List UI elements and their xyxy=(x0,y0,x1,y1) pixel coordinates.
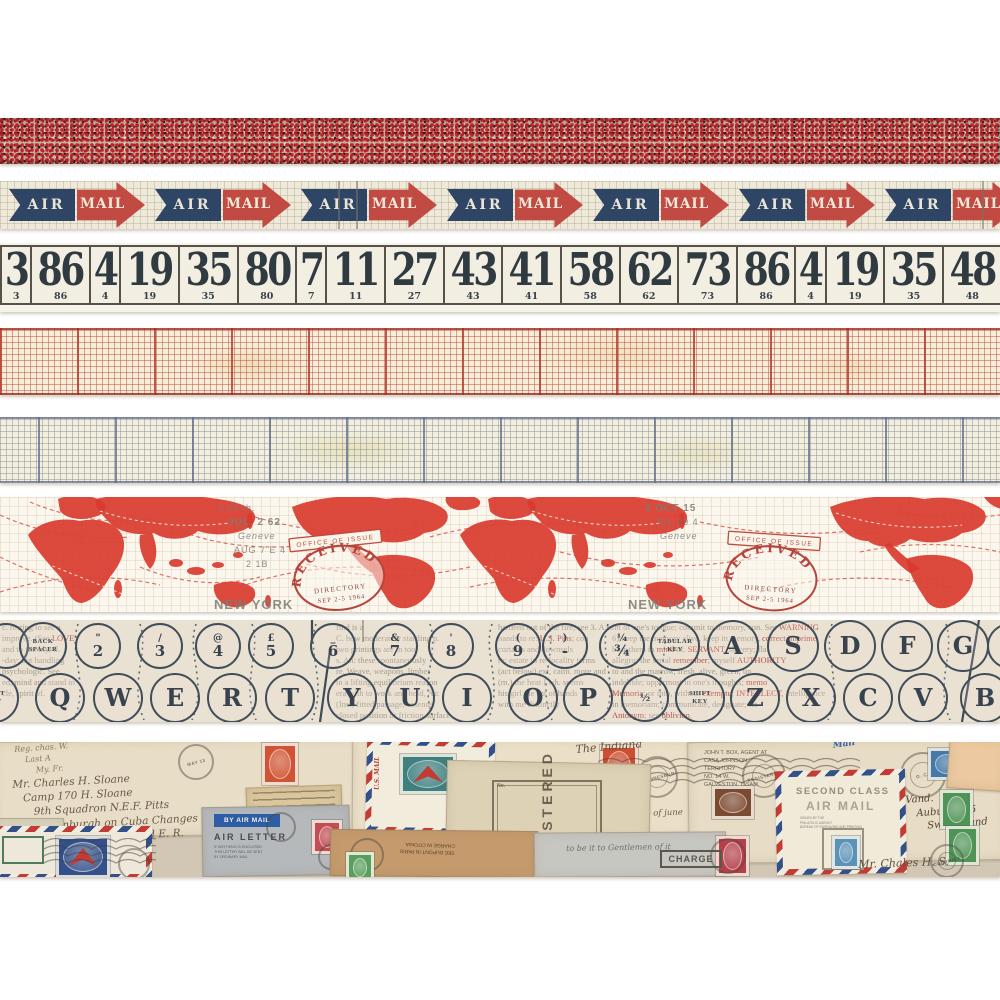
ticket-number-large: 27 xyxy=(392,247,437,293)
typewriter-key: R xyxy=(207,673,257,722)
stamped-text: AIR MAIL xyxy=(806,799,875,813)
ticket-number-small: 35 xyxy=(180,292,237,302)
key-symbol-bottom: 2 xyxy=(93,644,103,659)
postmark-gray-text: JUL 29 4 xyxy=(655,517,699,527)
design-tape-product-photo: AIRMAILAIRMAILAIRMAILAIRMAILAIRMAILAIRMA… xyxy=(0,0,1000,1000)
typewriter-key: C xyxy=(843,673,893,722)
ticket-cell: 33 xyxy=(0,245,32,305)
postage-stamp xyxy=(940,790,973,829)
ticket-number-small: 41 xyxy=(503,292,560,302)
key-symbol-bottom: 4 xyxy=(213,644,223,659)
ticket-number-small: 19 xyxy=(121,292,178,302)
airmail-arrow-tail: AIR xyxy=(593,189,659,221)
typewriter-key: ¼¾ xyxy=(599,623,645,669)
postmark-gray-text: JUL. 2 62 xyxy=(228,517,281,528)
typewriter-key: T xyxy=(265,673,315,722)
ticket-number-large: 7 xyxy=(300,247,323,293)
ticket-number-large: 11 xyxy=(333,247,378,293)
airmail-arrow: AIRMAIL xyxy=(295,181,441,229)
ticket-cell: 8080 xyxy=(237,245,298,305)
typewriter-key: X xyxy=(786,673,836,722)
ticket-number-small: 27 xyxy=(386,292,443,302)
typewriter-key: _6 xyxy=(310,623,356,669)
grid-dark-line xyxy=(338,181,340,229)
ticket-number-small: 58 xyxy=(562,292,619,302)
grid-dark-line xyxy=(356,181,358,229)
handwritten-text: U.S. MAIL xyxy=(374,757,382,790)
airmail-arrow: AIRMAIL xyxy=(441,181,587,229)
airmail-arrow: AIRMAIL xyxy=(587,181,733,229)
postmark-gray-text: Geneve xyxy=(238,531,276,541)
typed-text: IF ANYTHING IS ENCLOSEDTHIS LETTER WILL … xyxy=(214,845,263,861)
postmark-gray-text: 2 1B xyxy=(246,559,269,569)
ticket-number-large: 62 xyxy=(626,247,671,293)
ticket-number-large: 4 xyxy=(799,247,822,293)
typewriter-key: BACKSPACER xyxy=(19,622,67,670)
airmail-arrow-head: MAIL xyxy=(661,181,729,229)
postmark: MAY 13 xyxy=(178,744,214,780)
key-symbol-bottom: 7 xyxy=(390,644,400,659)
ticket-number-large: 48 xyxy=(950,247,995,293)
postmark-gray-text: Geneve xyxy=(660,531,698,541)
ticket-number-small: 4 xyxy=(91,292,119,302)
ticket-cell: 8686 xyxy=(30,245,91,305)
airmail-arrow-head: MAIL xyxy=(223,181,291,229)
typewriter-key: £5 xyxy=(248,623,294,669)
boxed-stamp-text xyxy=(2,836,44,864)
postage-stamp xyxy=(346,852,374,877)
airmail-arrow-head: MAIL xyxy=(807,181,875,229)
typewriter-key: A xyxy=(707,620,759,672)
postage-stamp xyxy=(262,743,298,785)
world-map-svg: x 29 th.JUL. 2 62GeneveAUG 7 E 42 1B3 OC… xyxy=(0,497,1000,612)
ticket-number-large: 86 xyxy=(38,247,83,293)
key-symbol-bottom: 8 xyxy=(446,644,456,659)
ticket-number-small: 73 xyxy=(679,292,736,302)
tape-strip-confetti xyxy=(0,118,1000,164)
ticket-cell: 5858 xyxy=(560,245,621,305)
typewriter-key: E xyxy=(150,673,200,722)
ticket-number-large: 43 xyxy=(450,247,495,293)
received-stamp: OFFICE OF ISSUERECEIVEDDIRECTORYSEP 2-5 … xyxy=(284,529,388,612)
ticket-number-large: 4 xyxy=(94,247,117,293)
tape-strip-typewriter-keys: c. resting to see aimprove. (See LOVE)an… xyxy=(0,620,1000,722)
typewriter-key: &7 xyxy=(372,623,418,669)
postmark-gray-text: 3 OCT 15 xyxy=(645,503,696,514)
ticket-number-small: 4 xyxy=(796,292,824,302)
postmark: COLUMBIA xyxy=(930,844,964,877)
stamp-portrait-oval xyxy=(269,749,291,779)
postmark xyxy=(266,812,296,842)
ticket-number-large: 80 xyxy=(244,247,289,293)
ticket-cell: 3535 xyxy=(178,245,239,305)
ticket-number-small: 80 xyxy=(239,292,296,302)
postmark-gray-text: AUG 7 E 4 xyxy=(234,545,286,555)
typewriter-key: F xyxy=(881,620,933,672)
key-caption: KEY xyxy=(667,646,683,654)
stamped-text: SECOND CLASS xyxy=(796,786,889,797)
stamp-portrait-oval xyxy=(947,796,966,823)
ticket-cell: 4141 xyxy=(501,245,562,305)
key-symbol-bottom: 6 xyxy=(328,644,338,659)
typewriter-key: TABULARKEY xyxy=(650,621,700,671)
tape-strip-blue-graph-grid xyxy=(0,417,1000,483)
ticket-number-large: 86 xyxy=(743,247,788,293)
typewriter-key: SHIFTKEY xyxy=(675,673,725,722)
ticket-cell: 44 xyxy=(89,245,121,305)
handwritten-text: Reg. chas. W.Last AMy. Fr. xyxy=(14,742,70,777)
typewriter-key: /3 xyxy=(137,623,183,669)
airmail-arrow-tail: AIR xyxy=(885,189,951,221)
typewriter-key: U xyxy=(385,673,435,722)
postmark-gray-text: NEW YORK xyxy=(628,597,707,612)
ticket-number-large: 35 xyxy=(186,247,231,293)
key-caption: SPACER xyxy=(29,646,58,654)
airmail-arrow-head: MAIL xyxy=(369,181,437,229)
ticket-number-small: 11 xyxy=(327,292,384,302)
ticket-number-small: 7 xyxy=(297,292,325,302)
typewriter-key: Y xyxy=(327,673,377,722)
airmail-arrow: AIRMAIL xyxy=(733,181,879,229)
ticket-number-small: 62 xyxy=(621,292,678,302)
ticket-cell: 3535 xyxy=(883,245,944,305)
typewriter-key: D xyxy=(824,620,876,672)
airmail-arrow-head: MAIL xyxy=(515,181,583,229)
typewriter-key: S xyxy=(767,620,819,672)
ticket-cell: 8686 xyxy=(736,245,797,305)
stamp-portrait-oval xyxy=(353,858,367,877)
envelope xyxy=(946,742,1000,792)
typewriter-key: W xyxy=(93,673,143,722)
ticket-number-small: 35 xyxy=(885,292,942,302)
tape-strip-envelope-collage: Reg. chas. W.Last AMy. Fr.Mr. Charles H.… xyxy=(0,742,1000,877)
key-symbol-bottom: 5 xyxy=(266,644,276,659)
airmail-arrow-head: MAIL xyxy=(77,181,145,229)
airmail-arrow-tail: AIR xyxy=(739,189,805,221)
key-symbol-bottom: ¾ xyxy=(614,644,630,659)
ticket-cell: 1111 xyxy=(325,245,386,305)
ticket-number-large: 73 xyxy=(685,247,730,293)
ticket-number-large: 58 xyxy=(568,247,613,293)
airmail-arrow-head: MAIL xyxy=(953,181,1000,229)
ticket-number-large: 41 xyxy=(509,247,554,293)
ticket-cell: 1919 xyxy=(119,245,180,305)
received-stamp: OFFICE OF ISSUERECEIVEDDIRECTORYSEP 2-5 … xyxy=(719,531,821,612)
typewriter-key: P xyxy=(563,673,613,722)
typewriter-key: V xyxy=(898,673,948,722)
ticket-cell: 77 xyxy=(295,245,327,305)
ticket-number-small: 43 xyxy=(445,292,502,302)
postmark xyxy=(118,848,150,877)
typewriter-key: (9 xyxy=(495,623,541,669)
ticket-cell: 6262 xyxy=(619,245,680,305)
ticket-number-small: 86 xyxy=(32,292,89,302)
typewriter-key: "2 xyxy=(75,623,121,669)
tape-strip-ticket-numbers: 3386864419193535808077111127274343414158… xyxy=(0,243,1000,312)
typewriter-key: Z xyxy=(730,673,780,722)
typewriter-key: G xyxy=(937,620,989,672)
ticket-cell: 7373 xyxy=(677,245,738,305)
world-map-graphic: x 29 th.JUL. 2 62GeneveAUG 7 E 42 1B3 OC… xyxy=(0,497,1000,612)
handwritten-text: to be it to Gentlemen of it xyxy=(566,842,671,855)
airmail-arrow-tail: AIR xyxy=(447,189,513,221)
key-symbol-top: ½ xyxy=(640,693,650,704)
typewriter-key: ½ xyxy=(621,674,669,722)
tape-strip-red-graph-grid xyxy=(0,328,1000,395)
ticket-number-large: 35 xyxy=(891,247,936,293)
airmail-arrow: AIRMAIL xyxy=(3,181,149,229)
key-symbol-bottom: 9 xyxy=(513,644,523,659)
postage-stamp xyxy=(832,836,860,869)
key-caption: SHIFT xyxy=(689,690,711,698)
ticket-number-large: 19 xyxy=(127,247,172,293)
tape-strip-airmail-world-map: x 29 th.JUL. 2 62GeneveAUG 7 E 42 1B3 OC… xyxy=(0,497,1000,612)
grid-dark-line xyxy=(982,181,984,229)
airmail-arrow: AIRMAIL xyxy=(149,181,295,229)
ticket-cell: 2727 xyxy=(384,245,445,305)
typewriter-key: Q xyxy=(35,673,85,722)
ticket-number-large: 19 xyxy=(832,247,877,293)
key-symbol-bottom: 3 xyxy=(155,644,165,659)
airmail-arrow-tail: AIR xyxy=(155,189,221,221)
typewriter-key: @4 xyxy=(195,623,241,669)
ticket-number-small: 19 xyxy=(827,292,884,302)
ticket-cell: 4343 xyxy=(443,245,504,305)
typewriter-key: '8 xyxy=(428,623,474,669)
typewriter-key: )- xyxy=(542,623,588,669)
typed-text: SEE DUPONT IN PARISCHARGE IN CITONIA xyxy=(400,839,455,855)
stamp-portrait-oval xyxy=(839,842,853,863)
key-caption: SHIFT xyxy=(0,690,5,698)
ticket-cell: 4848 xyxy=(942,245,1000,305)
typewriter-key: I xyxy=(442,673,492,722)
tape-strip-airmail-arrows: AIRMAILAIRMAILAIRMAILAIRMAILAIRMAILAIRMA… xyxy=(0,181,1000,229)
ticket-cell: 1919 xyxy=(825,245,886,305)
key-caption: TABULAR xyxy=(658,638,693,646)
typewriter-key: O xyxy=(508,673,558,722)
ticket-number-small: 86 xyxy=(738,292,795,302)
stamp-portrait-oval xyxy=(719,792,747,813)
key-caption: KEY xyxy=(692,698,708,706)
ticket-number-small: 48 xyxy=(944,292,1000,302)
airmail-arrow-tail: AIR xyxy=(9,189,75,221)
key-symbol-bottom: - xyxy=(562,644,568,659)
ticket-number-small: 3 xyxy=(2,292,30,302)
ticket-number-large: 3 xyxy=(5,247,28,293)
key-caption: BACK xyxy=(33,638,54,646)
postmark-gray-text: x 29 th. xyxy=(218,503,256,513)
postmark-gray-text: NEW YORK xyxy=(214,597,293,612)
key-caption: KEY xyxy=(0,698,2,706)
postage-stamp xyxy=(712,786,754,819)
boxed-stamp-text: CHARGE xyxy=(660,850,722,868)
typewriter-key: B xyxy=(960,673,1000,722)
ticket-cell: 44 xyxy=(794,245,826,305)
continent-shapes xyxy=(28,497,1000,608)
